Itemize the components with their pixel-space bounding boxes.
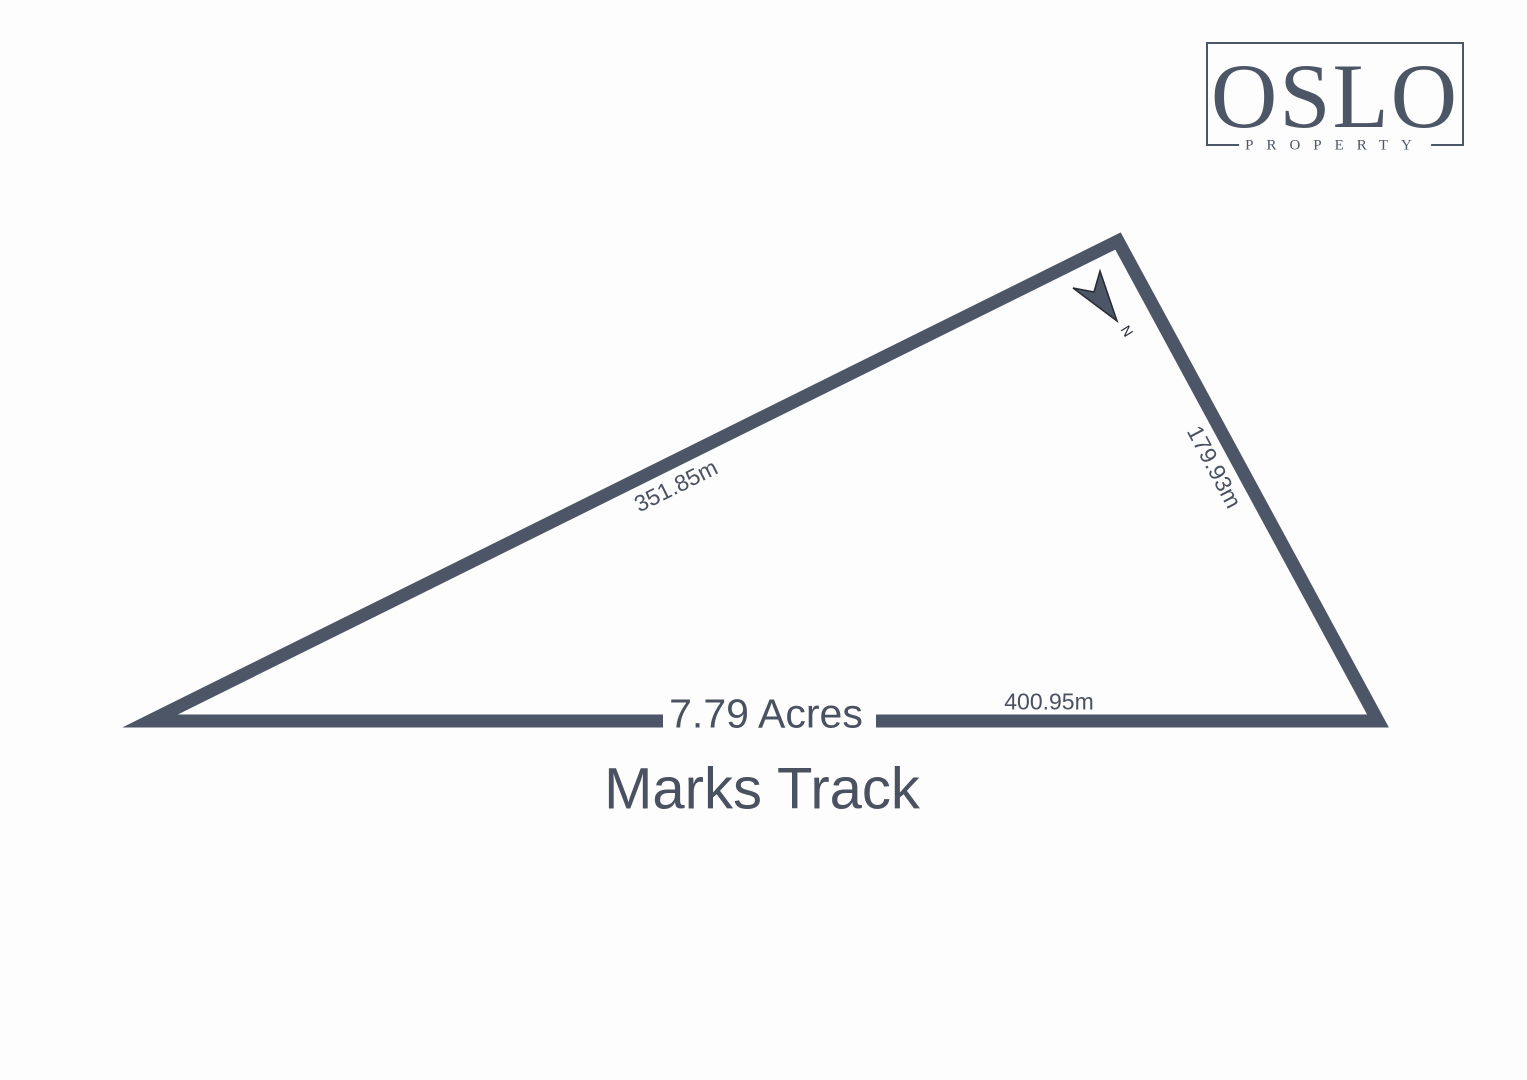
lot-area-label: 7.79 Acres <box>669 691 863 738</box>
north-arrow-icon <box>1073 271 1117 321</box>
lot-boundary <box>150 241 1378 721</box>
street-name-label: Marks Track <box>604 756 920 823</box>
lot-plan-drawing <box>0 0 1527 1080</box>
side-length-south: 400.95m <box>1004 689 1094 716</box>
site-plan: 351.85m 179.93m 400.95m 7.79 Acres Marks… <box>0 0 1527 1080</box>
logo-subtitle: PROPERTY <box>1239 138 1431 155</box>
logo-wordmark: OSLO <box>1208 44 1462 148</box>
oslo-property-logo: OSLO PROPERTY <box>1206 42 1464 146</box>
